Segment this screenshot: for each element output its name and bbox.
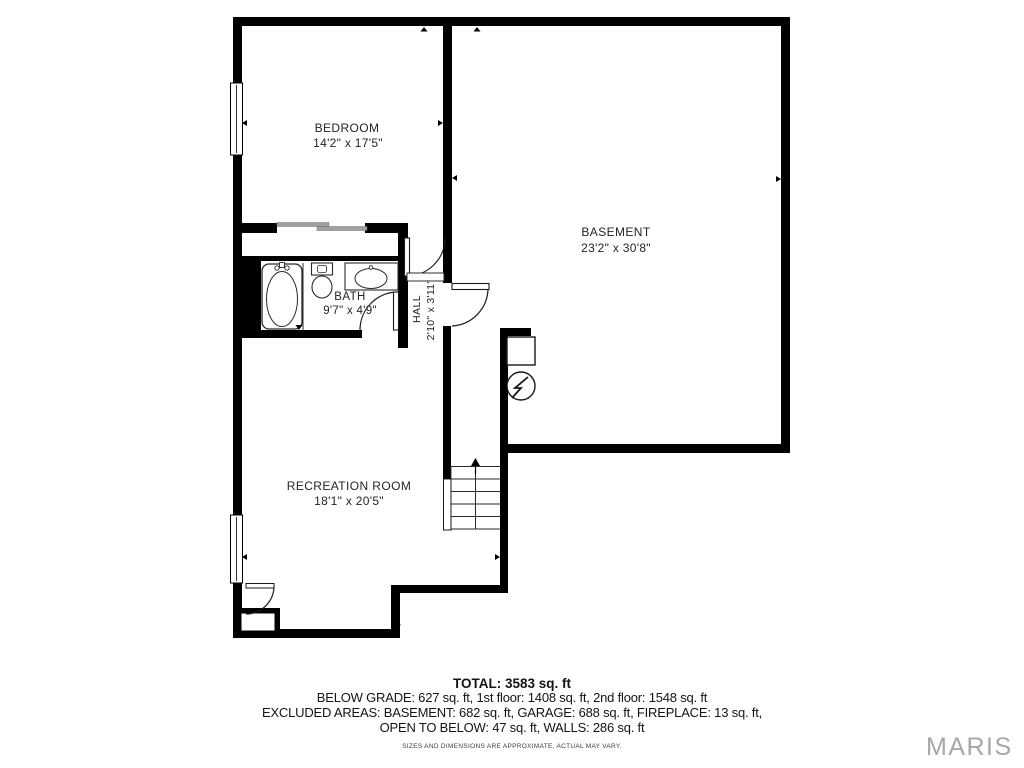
floorplan-drawing [0, 0, 1024, 768]
bedroom-room-dims: 14'2" x 17'5" [313, 136, 383, 150]
recreation-room-label: RECREATION ROOM [287, 479, 411, 493]
stairs-up-arrow [471, 458, 480, 474]
wall-divider-lower [443, 326, 451, 479]
water-heater-icon [507, 372, 535, 400]
open-to-below-text: OPEN TO BELOW: 47 sq. ft, WALLS: 286 sq.… [0, 720, 1024, 735]
bath-room-label: BATH [334, 291, 365, 303]
basement-door-panel [452, 284, 489, 290]
bedroom-door [405, 238, 446, 276]
staircase [451, 467, 500, 530]
wall-step-top [398, 585, 508, 593]
below-grade-text: BELOW GRADE: 627 sq. ft, 1st floor: 1408… [0, 690, 1024, 705]
recreation-window [231, 515, 243, 583]
basement-room-label: BASEMENT [581, 225, 650, 239]
toilet [312, 263, 333, 298]
wall-stairwell-right [500, 328, 508, 593]
wall-top [233, 17, 790, 26]
bath-door-panel [394, 292, 399, 330]
wall-bath-left-mass [233, 261, 261, 333]
hall-room-dims: 2'10" x 3'11" [425, 280, 437, 341]
basement-door [452, 284, 489, 327]
bedroom-door-panel [405, 238, 410, 276]
hall-room-label: HALL [411, 295, 423, 323]
walls [233, 17, 790, 638]
sink-vanity [345, 263, 398, 290]
entry-landing-niche [241, 613, 275, 631]
wall-bedroom-bottom-left [233, 223, 277, 233]
furnace-box [507, 337, 535, 365]
bathtub [262, 263, 302, 330]
basement-room-dims: 23'2" x 30'8" [581, 241, 651, 255]
wall-bedroom-bottom-right [365, 223, 398, 233]
wall-stub [500, 328, 531, 336]
basement-door-arc [452, 288, 488, 326]
closet-sliding-door [277, 223, 367, 231]
wall-bath-bottom [233, 330, 362, 338]
recreation-room-dims: 18'1" x 20'5" [314, 494, 384, 508]
exterior-door-panel [246, 584, 274, 589]
floorplan-page: BEDROOM 14'2" x 17'5" BASEMENT 23'2" x 3… [0, 0, 1024, 768]
stair-railing [444, 479, 452, 530]
bedroom-room-label: BEDROOM [315, 121, 380, 135]
wall-bath-top [242, 256, 398, 261]
bath-room-dims: 9'7" x 4'9" [323, 305, 377, 317]
bedroom-door-arc [407, 238, 445, 276]
bedroom-window [231, 83, 243, 155]
wall-right [781, 17, 790, 453]
wall-basement-bottom [500, 444, 790, 453]
excluded-areas-text: EXCLUDED AREAS: BASEMENT: 682 sq. ft, GA… [0, 705, 1024, 720]
total-area-text: TOTAL: 3583 sq. ft [0, 676, 1024, 691]
disclaimer-text: SIZES AND DIMENSIONS ARE APPROXIMATE, AC… [0, 743, 1024, 750]
maris-watermark: MARIS [926, 733, 1013, 762]
